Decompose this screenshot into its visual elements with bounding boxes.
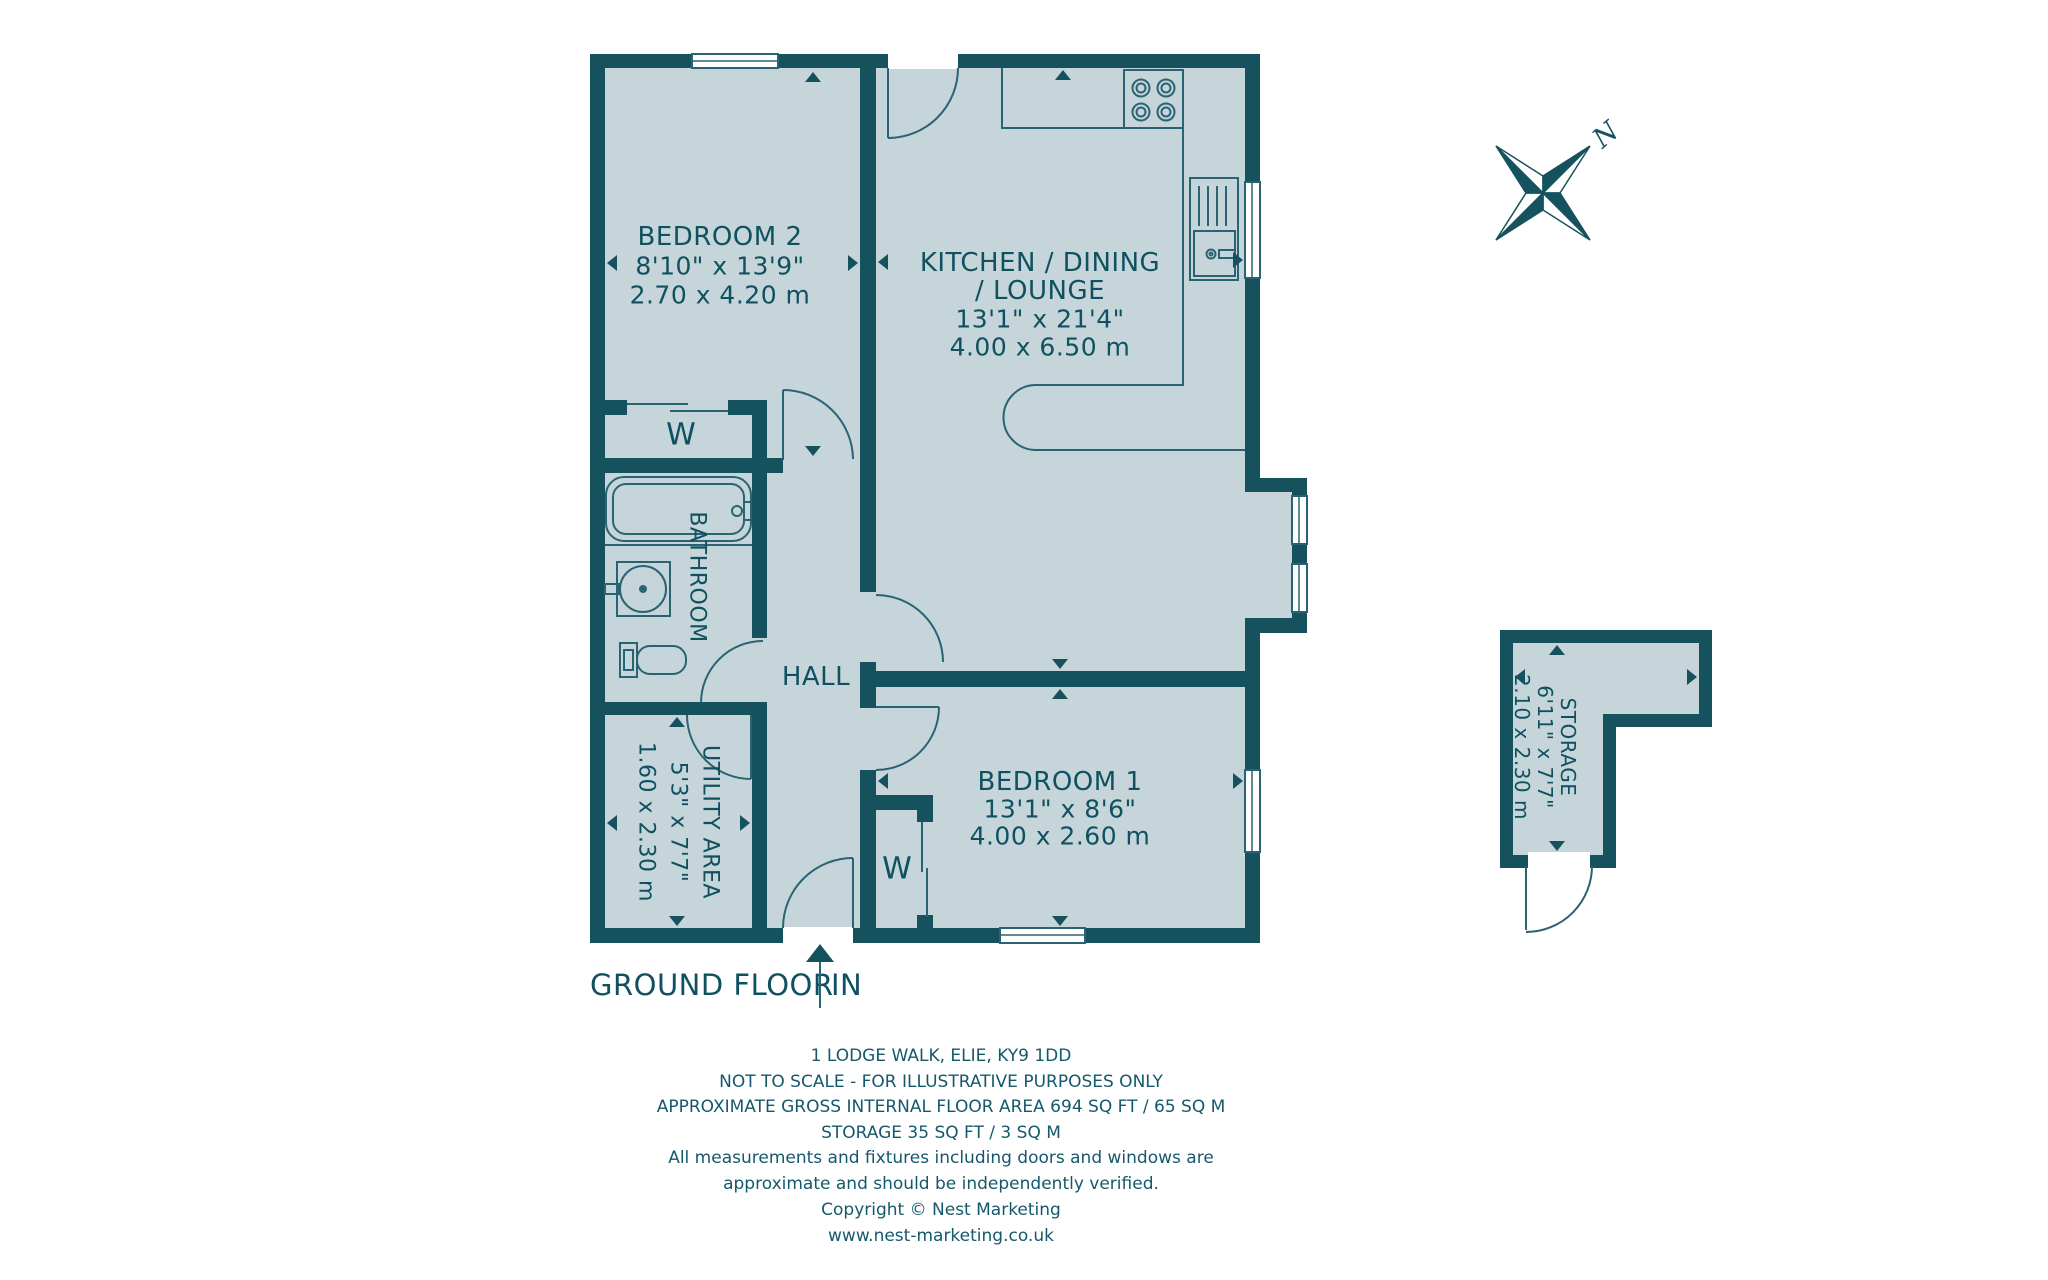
floorplan-page: BEDROOM 2 8'10" x 13'9" 2.70 x 4.20 m KI… xyxy=(0,0,2048,1280)
wardrobe1-label: W xyxy=(882,852,912,887)
bathroom-name: BATHROOM xyxy=(685,511,710,642)
utility-name: UTILITY AREA xyxy=(698,745,723,899)
bedroom1-name: BEDROOM 1 xyxy=(977,767,1142,797)
entrance-label: IN xyxy=(831,968,862,1002)
utility-met: 1.60 x 2.30 m xyxy=(634,742,659,902)
window-bedroom2-top xyxy=(692,54,778,68)
footer-disclaimer-1: All measurements and fixtures including … xyxy=(668,1148,1214,1168)
compass-n-label: N xyxy=(1586,115,1626,155)
compass-rose-icon: N xyxy=(1496,115,1626,240)
main-building: BEDROOM 2 8'10" x 13'9" 2.70 x 4.20 m KI… xyxy=(590,52,1307,944)
kitchen-imp: 13'1" x 21'4" xyxy=(955,305,1124,334)
hall-name: HALL xyxy=(782,662,850,692)
bedroom1-met: 4.00 x 2.60 m xyxy=(970,822,1151,851)
storage-door-opening xyxy=(1528,852,1590,869)
footer-block: 1 LODGE WALK, ELIE, KY9 1DD NOT TO SCALE… xyxy=(657,1046,1226,1246)
floor-annotations: GROUND FLOOR IN xyxy=(590,944,862,1008)
window-bedroom1-right xyxy=(1245,770,1260,852)
kitchen-name-2: / LOUNGE xyxy=(975,276,1105,306)
footer-area: APPROXIMATE GROSS INTERNAL FLOOR AREA 69… xyxy=(657,1097,1226,1117)
bedroom1-imp: 13'1" x 8'6" xyxy=(984,795,1137,824)
footer-storage: STORAGE 35 SQ FT / 3 SQ M xyxy=(821,1123,1061,1143)
window-bedroom1-bottom xyxy=(1000,928,1085,943)
kitchen-door-opening xyxy=(888,52,958,69)
entrance-door-opening xyxy=(783,927,853,944)
wardrobe2-label: W xyxy=(666,418,696,453)
bedroom2-imp: 8'10" x 13'9" xyxy=(635,252,804,281)
storage-building: STORAGE 6'11" x 7'7" 2.10 x 2.30 m xyxy=(1500,630,1712,932)
kitchen-met: 4.00 x 6.50 m xyxy=(950,333,1131,362)
storage-name: STORAGE xyxy=(1556,698,1580,797)
footer-scale-note: NOT TO SCALE - FOR ILLUSTRATIVE PURPOSES… xyxy=(719,1072,1163,1092)
kitchen-name-1: KITCHEN / DINING xyxy=(920,248,1160,278)
storage-door-arc xyxy=(1526,866,1592,932)
bedroom2-name: BEDROOM 2 xyxy=(637,222,802,252)
footer-website: www.nest-marketing.co.uk xyxy=(828,1226,1054,1246)
window-bay-lower xyxy=(1292,564,1307,612)
bedroom2-met: 2.70 x 4.20 m xyxy=(630,281,811,310)
storage-met: 2.10 x 2.30 m xyxy=(1510,674,1534,820)
floor-plan-svg: BEDROOM 2 8'10" x 13'9" 2.70 x 4.20 m KI… xyxy=(0,0,2048,1280)
storage-imp: 6'11" x 7'7" xyxy=(1533,685,1557,809)
utility-imp: 5'3" x 7'7" xyxy=(666,762,691,883)
floor-label: GROUND FLOOR xyxy=(590,968,834,1002)
footer-copyright: Copyright © Nest Marketing xyxy=(821,1200,1061,1220)
window-kitchen-right xyxy=(1245,182,1260,278)
footer-disclaimer-2: approximate and should be independently … xyxy=(723,1174,1159,1194)
footer-address: 1 LODGE WALK, ELIE, KY9 1DD xyxy=(811,1046,1072,1066)
window-bay-upper xyxy=(1292,496,1307,544)
